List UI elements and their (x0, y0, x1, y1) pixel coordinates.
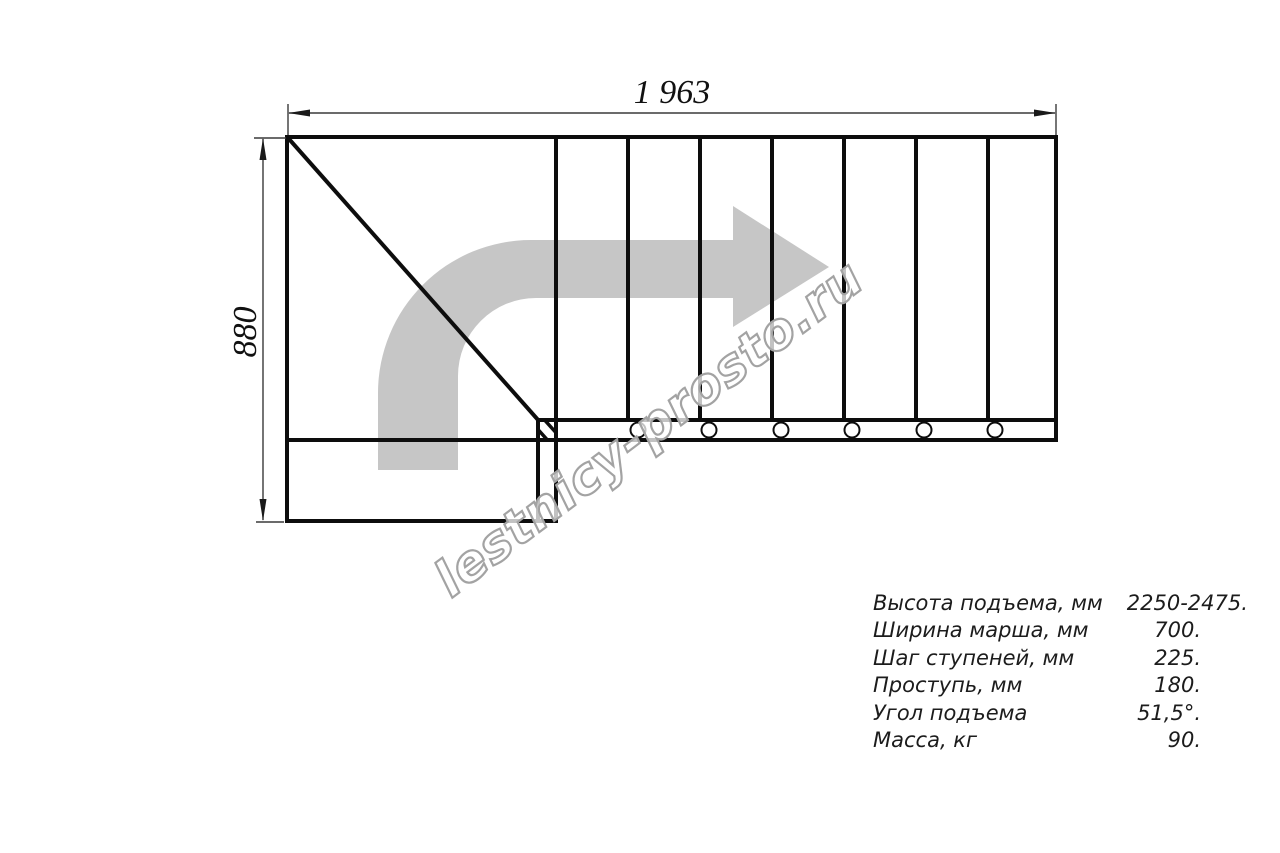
dimension-arrow-up (260, 138, 267, 160)
spec-row: Угол подъема 51,5°. (873, 700, 1201, 727)
spec-label: Ширина марша, мм (873, 617, 1089, 644)
spec-value: 2250-2475. (1127, 590, 1248, 617)
spec-row: Масса, кг 90. (873, 727, 1201, 754)
dimension-arrow-right (1034, 110, 1056, 117)
spec-label: Масса, кг (873, 727, 977, 754)
fastener-circle (774, 423, 789, 438)
spec-value: 700. (1154, 617, 1201, 644)
spec-label: Высота подъема, мм (873, 590, 1103, 617)
spec-label: Угол подъема (873, 700, 1027, 727)
spec-value: 90. (1168, 727, 1201, 754)
height-dimension-label: 880 (227, 307, 264, 358)
spec-value: 51,5°. (1137, 700, 1201, 727)
spec-label: Проступь, мм (873, 672, 1022, 699)
spec-value: 180. (1154, 672, 1201, 699)
height-dimension: 880 (227, 138, 286, 522)
spec-value: 225. (1154, 645, 1201, 672)
stair-plan-page: 1 963 880 lestnicy-prosto.ru Высота подъ… (0, 0, 1280, 853)
specs-table: Высота подъема, мм 2250-2475. Ширина мар… (873, 590, 1201, 754)
spec-row: Проступь, мм 180. (873, 672, 1201, 699)
fastener-circle (988, 423, 1003, 438)
dimension-arrow-left (288, 110, 310, 117)
spec-row: Шаг ступеней, мм 225. (873, 645, 1201, 672)
fastener-circle (917, 423, 932, 438)
spec-label: Шаг ступеней, мм (873, 645, 1074, 672)
spec-row: Высота подъема, мм 2250-2475. (873, 590, 1201, 617)
fastener-circle (702, 423, 717, 438)
fastener-circle (845, 423, 860, 438)
dimension-arrow-down (260, 499, 267, 521)
width-dimension-label: 1 963 (634, 74, 711, 111)
width-dimension: 1 963 (288, 74, 1056, 135)
spec-row: Ширина марша, мм 700. (873, 617, 1201, 644)
